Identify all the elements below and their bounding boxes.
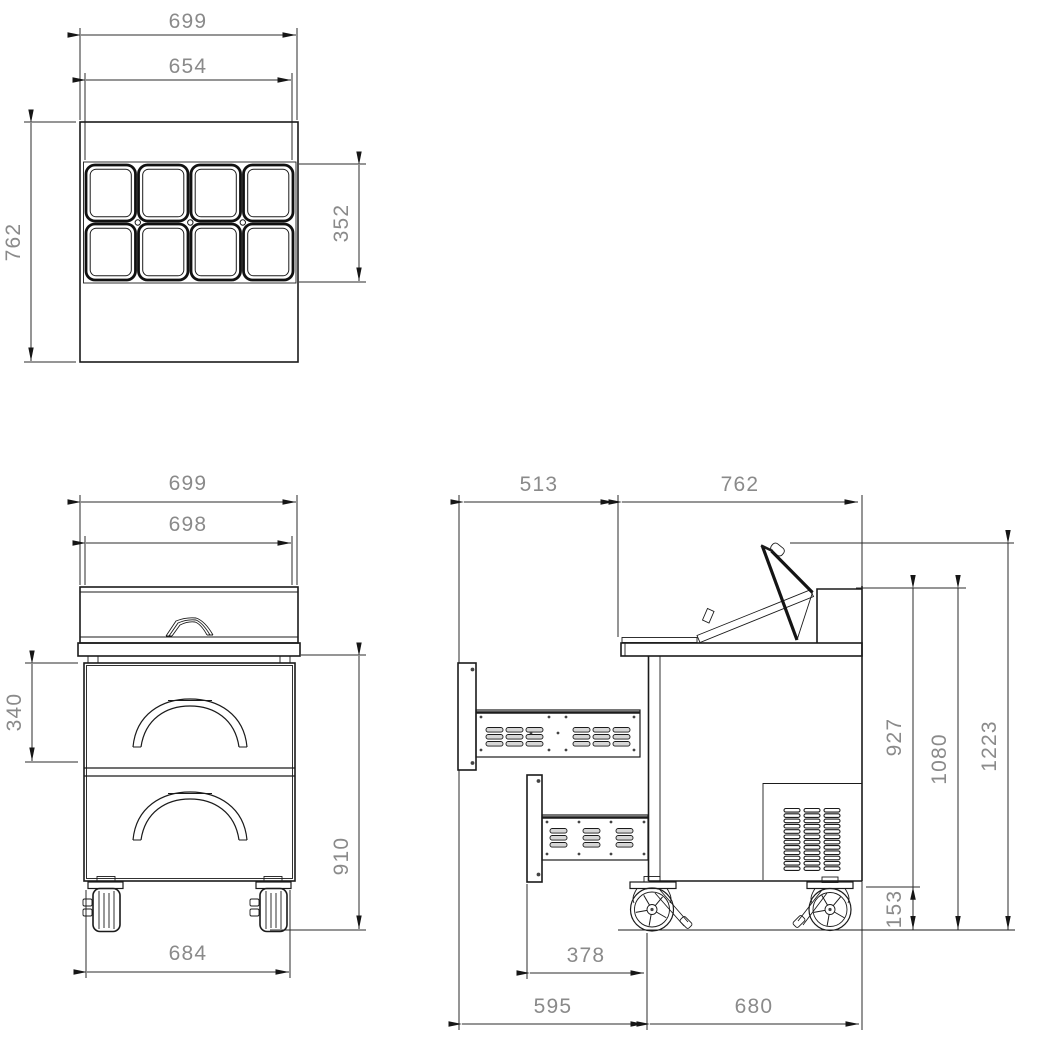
dim-side-rear-overhang: 513 xyxy=(520,473,559,496)
dim-plan-pan-field-width: 654 xyxy=(169,55,208,78)
dim-front-overall-width: 699 xyxy=(169,472,208,495)
lid-handle xyxy=(166,618,213,636)
side-lid-flat xyxy=(622,638,697,643)
side-rear-rail xyxy=(817,589,862,643)
dim-side-clearance: 153 xyxy=(883,890,906,929)
front-caster-right xyxy=(250,877,291,932)
drawer-handle-upper xyxy=(133,699,247,747)
dim-plan-overall-width: 699 xyxy=(169,10,208,33)
dim-front-caster-spacing: 684 xyxy=(169,942,208,965)
dim-side-lower-body: 680 xyxy=(735,995,774,1018)
drawer-handle-lower xyxy=(133,792,247,840)
front-caster-left xyxy=(83,877,123,932)
technical-drawing-sheet: 699 654 762 352 699 698 340 910 684 xyxy=(0,0,1041,1041)
vent-screws-upper xyxy=(480,716,636,752)
condenser-grille xyxy=(784,809,840,871)
side-lid-open xyxy=(761,542,813,640)
front-lid-band xyxy=(80,587,298,643)
dim-front-body-height: 910 xyxy=(330,837,353,876)
dim-side-body-depth: 762 xyxy=(721,473,760,496)
side-lid-handle xyxy=(703,609,715,624)
front-drawer-cabinet xyxy=(84,663,295,881)
dim-front-body-width: 698 xyxy=(169,513,208,536)
dim-side-rear-total: 595 xyxy=(534,995,573,1018)
dim-plan-pan-field-depth: 352 xyxy=(330,204,353,243)
side-view: 513 762 927 1080 1223 153 378 595 680 xyxy=(458,473,1015,1030)
side-caster-rear xyxy=(792,877,853,931)
vent-box-upper xyxy=(458,663,640,770)
dim-side-lid-open-height: 1223 xyxy=(978,720,1001,772)
dim-side-vent-depth: 378 xyxy=(567,944,606,967)
dim-side-rear-rail-height: 1080 xyxy=(928,733,951,785)
dim-front-drawer-height: 340 xyxy=(3,693,26,732)
side-caster-front xyxy=(630,877,693,932)
dim-side-worktop-height: 927 xyxy=(883,718,906,757)
vent-box-lower xyxy=(527,775,648,882)
front-view: 699 698 340 910 684 xyxy=(3,472,366,978)
front-worktop-edge xyxy=(78,643,300,656)
side-worktop xyxy=(621,643,862,656)
plan-view: 699 654 762 352 xyxy=(2,10,366,362)
drawing-svg: 699 654 762 352 699 698 340 910 684 xyxy=(0,0,1041,1041)
dim-plan-overall-depth: 762 xyxy=(2,223,25,262)
side-body-outline xyxy=(649,586,863,881)
